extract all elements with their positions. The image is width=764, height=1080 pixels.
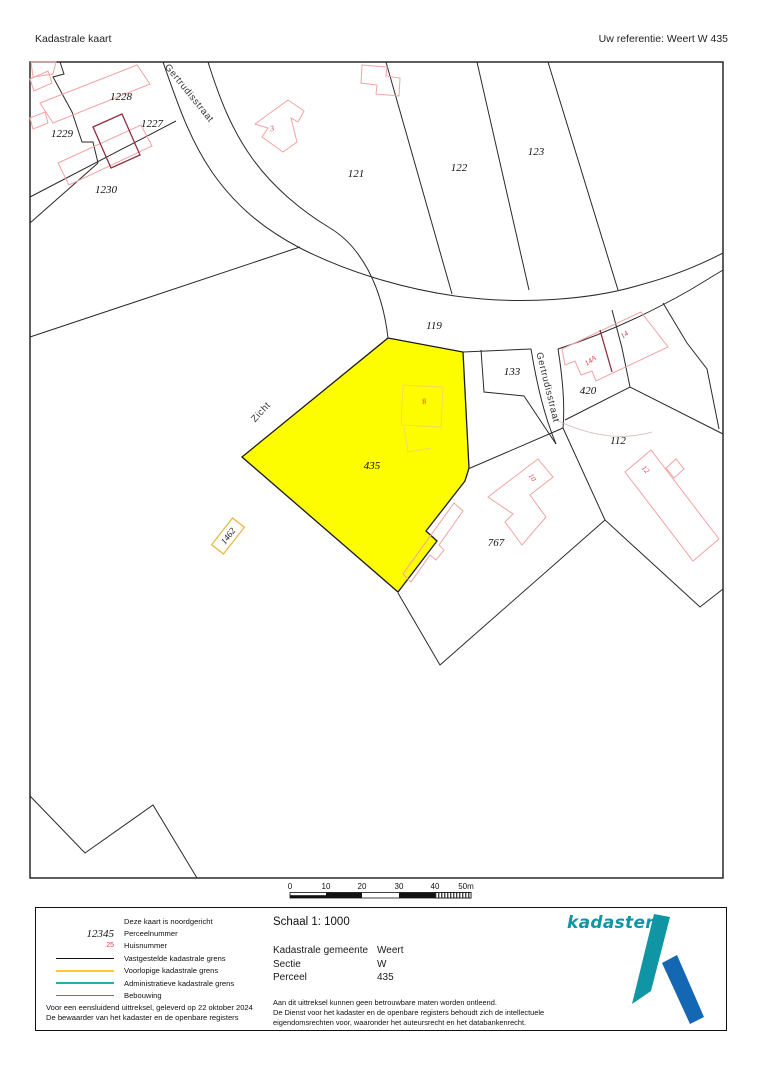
parcel-label-119: 119 bbox=[426, 320, 442, 332]
detail-row-gemeente: Kadastrale gemeente Weert bbox=[273, 944, 404, 958]
scale-bar: 0 10 20 30 40 50m bbox=[288, 882, 474, 898]
parcel-label-420: 420 bbox=[580, 385, 597, 397]
legend-row-administratieve-grens: Administratieve kadastrale grens bbox=[42, 977, 267, 989]
legend-symbol-yellow-line bbox=[42, 970, 124, 972]
legend-label-bebouwing: Bebouwing bbox=[124, 991, 162, 1000]
disclaimer-line-3: eigendomsrechten voor, waaronder het aut… bbox=[273, 1018, 573, 1028]
legend-row-bebouwing: Bebouwing bbox=[42, 989, 267, 1001]
legend-row-voorlopige-grens: Voorlopige kadastrale grens bbox=[42, 965, 267, 977]
scale-tick-20: 20 bbox=[358, 882, 367, 891]
scale-tick-0: 0 bbox=[288, 882, 293, 891]
extract-details: Schaal 1: 1000 Kadastrale gemeente Weert… bbox=[273, 908, 573, 1030]
parcel-label-122: 122 bbox=[451, 162, 468, 174]
legend: Deze kaart is noordgericht 12345 Perceel… bbox=[42, 915, 267, 1002]
legend-label-administratieve-grens: Administratieve kadastrale grens bbox=[124, 979, 234, 988]
scale-tick-50m: 50m bbox=[458, 882, 474, 891]
parcel-label-767: 767 bbox=[488, 537, 505, 549]
legend-row-north: Deze kaart is noordgericht bbox=[42, 915, 267, 927]
scale-text: Schaal 1: 1000 bbox=[273, 916, 350, 928]
cadastral-extract-page: Kadastrale kaart Uw referentie: Weert W … bbox=[0, 0, 764, 1080]
legend-symbol-teal-line bbox=[42, 982, 124, 984]
parcel-label-435: 435 bbox=[364, 460, 381, 472]
parcel-label-1230: 1230 bbox=[95, 184, 118, 196]
parcel-label-1228: 1228 bbox=[110, 91, 133, 103]
disclaimer-line-1: Aan dit uittreksel kunnen geen betrouwba… bbox=[273, 998, 573, 1008]
parcel-label-121: 121 bbox=[348, 168, 365, 180]
legend-symbol-black-line bbox=[42, 958, 124, 959]
scale-tick-40: 40 bbox=[431, 882, 440, 891]
detail-value-perceel: 435 bbox=[377, 971, 394, 985]
parcel-details: Kadastrale gemeente Weert Sectie W Perce… bbox=[273, 944, 404, 985]
legend-label-huisnummer: Huisnummer bbox=[124, 941, 167, 950]
detail-value-sectie: W bbox=[377, 958, 386, 972]
scale-tick-30: 30 bbox=[395, 882, 404, 891]
legend-label-perceelnummer: Perceelnummer bbox=[124, 929, 178, 938]
info-panel: Deze kaart is noordgericht 12345 Perceel… bbox=[35, 907, 727, 1031]
detail-row-sectie: Sectie W bbox=[273, 958, 404, 972]
legend-row-perceelnummer: 12345 Perceelnummer bbox=[42, 927, 267, 939]
legend-label-vastgestelde-grens: Vastgestelde kadastrale grens bbox=[124, 954, 226, 963]
disclaimer-text: Aan dit uittreksel kunnen geen betrouwba… bbox=[273, 998, 573, 1028]
parcel-label-123: 123 bbox=[528, 146, 545, 158]
disclaimer-line-2: De Dienst voor het kadaster en de openba… bbox=[273, 1008, 573, 1018]
attestation-line-2: De bewaarder van het kadaster en de open… bbox=[46, 1013, 253, 1023]
legend-row-huisnummer: 25 Huisnummer bbox=[42, 940, 267, 952]
parcel-label-133: 133 bbox=[504, 366, 521, 378]
legend-label-voorlopige-grens: Voorlopige kadastrale grens bbox=[124, 966, 218, 975]
attestation-line-1: Voor een eensluidend uittreksel, gelever… bbox=[46, 1003, 253, 1013]
detail-label-sectie: Sectie bbox=[273, 958, 377, 972]
attestation-text: Voor een eensluidend uittreksel, gelever… bbox=[46, 1003, 253, 1024]
detail-row-perceel: Perceel 435 bbox=[273, 971, 404, 985]
legend-symbol-red-line bbox=[42, 995, 124, 996]
kadaster-logo-icon bbox=[624, 911, 729, 1029]
detail-label-perceel: Perceel bbox=[273, 971, 377, 985]
parcel-label-1229: 1229 bbox=[51, 128, 74, 140]
legend-symbol-parcel-number: 12345 bbox=[42, 928, 124, 940]
detail-value-gemeente: Weert bbox=[377, 944, 404, 958]
legend-symbol-house-number: 25 bbox=[42, 942, 124, 949]
parcel-label-112: 112 bbox=[610, 435, 626, 447]
scale-tick-10: 10 bbox=[322, 882, 331, 891]
parcel-label-1227: 1227 bbox=[141, 118, 164, 130]
legend-label-north: Deze kaart is noordgericht bbox=[124, 917, 213, 926]
detail-label-gemeente: Kadastrale gemeente bbox=[273, 944, 377, 958]
legend-row-vastgestelde-grens: Vastgestelde kadastrale grens bbox=[42, 952, 267, 964]
